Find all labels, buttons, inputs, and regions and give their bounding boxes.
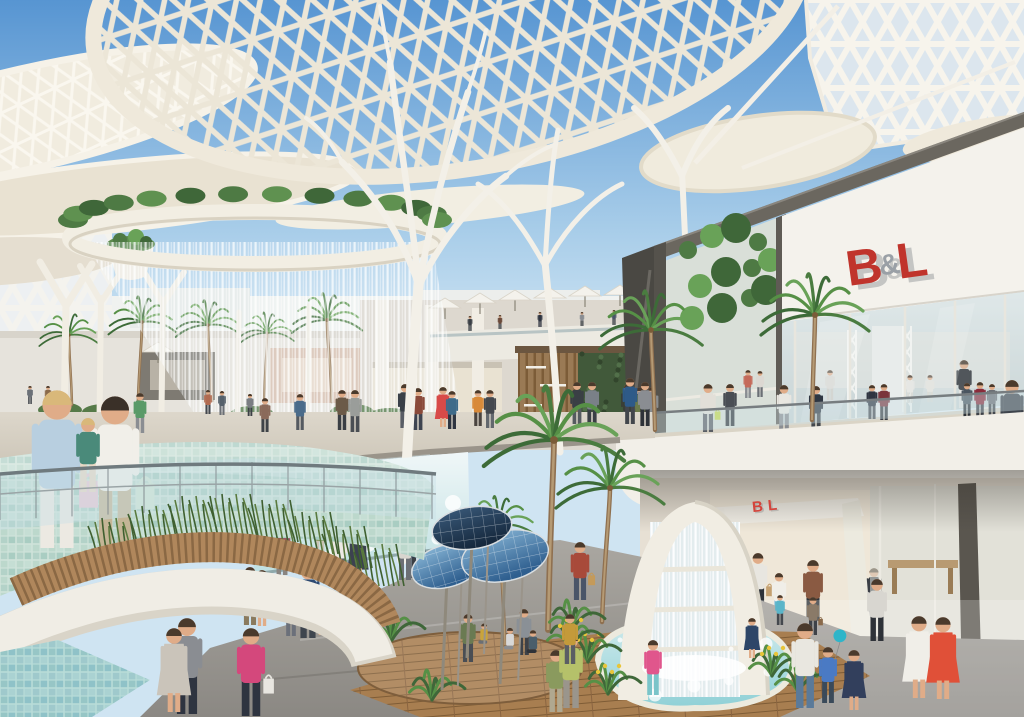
rendering-canvas [0,0,1024,717]
shrub [422,212,452,228]
mall-atrium-rendering: B&L BL [0,0,1024,717]
shrub [137,191,167,207]
shrub [175,188,205,204]
hanging-plant [711,257,741,287]
shrub [262,186,292,202]
mosaic-water-corner [0,640,150,717]
hanging-plant [721,213,751,243]
sign-letter-b: B [842,237,884,297]
hanging-plant [749,233,767,251]
hanging-plant [688,274,712,298]
hanging-plant [700,224,724,248]
shrub [104,195,134,211]
shrub [305,188,335,204]
sign-letter-l: L [893,230,929,289]
shrub [218,186,248,202]
hanging-plant [679,241,697,259]
hanging-plant [707,293,737,323]
